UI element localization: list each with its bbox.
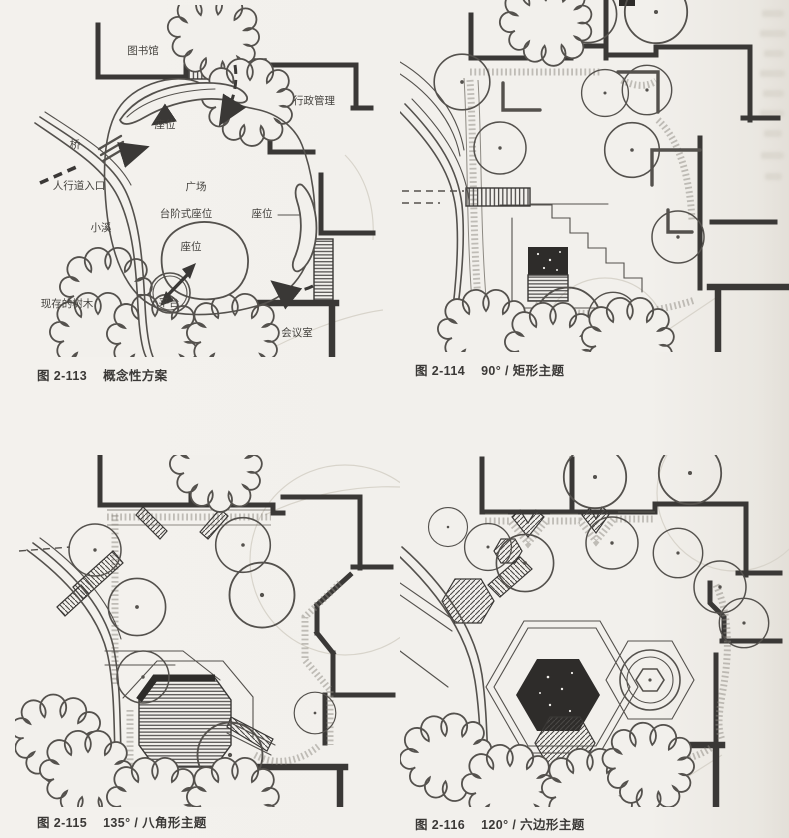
caption-fig-number: 图 2-114 [415, 364, 465, 378]
caption-title: 120° / 六边形主题 [481, 818, 585, 832]
label-seat-center: 座位 [181, 240, 202, 253]
stairs-right [314, 239, 333, 301]
label-library: 图书馆 [127, 44, 159, 57]
building-walls [471, 0, 789, 350]
caption-2-114: 图 2-11490° / 矩形主题 [415, 360, 564, 379]
octagon-deck [105, 651, 275, 767]
seat-band-right [293, 184, 317, 271]
label-admin: 行政管理 [293, 94, 335, 107]
label-platform: 平台 [159, 296, 180, 309]
bridge-hatch [19, 547, 123, 616]
planting-bands [485, 507, 727, 761]
label-seat-right: 座位 [252, 207, 273, 220]
figure-rect-theme: 图 2-11490° / 矩形主题 [400, 0, 789, 352]
bridge-hatch [442, 539, 532, 623]
caption-2-116: 图 2-116120° / 六边形主题 [415, 814, 585, 833]
caption-title: 135° / 八角形主题 [103, 816, 207, 830]
label-stream: 小溪 [91, 222, 112, 234]
caption-2-115: 图 2-115135° / 八角形主题 [37, 812, 207, 831]
figure-concept-scheme: 图书馆 行政管理 座位 桥 人行道入口 广场 台阶式座位 座位 小溪 座位 现存… [15, 5, 385, 357]
figure-hexagon-theme: 图 2-116120° / 六边形主题 [400, 455, 789, 807]
diagram-2-116 [400, 455, 789, 807]
caption-fig-number: 图 2-113 [37, 369, 87, 383]
book-page: 图书馆 行政管理 座位 桥 人行道入口 广场 台阶式座位 座位 小溪 座位 现存… [0, 0, 789, 838]
label-existing-trees: 现存的树木 [41, 297, 94, 310]
caption-2-113: 图 2-113概念性方案 [37, 365, 168, 384]
diagram-2-115 [15, 455, 400, 807]
bridge-hatch [402, 188, 608, 206]
diagram-2-114 [400, 0, 789, 352]
label-meeting: 会议室 [281, 326, 313, 339]
caption-fig-number: 图 2-116 [415, 818, 465, 832]
caption-fig-number: 图 2-115 [37, 816, 87, 830]
label-bridge: 桥 [70, 139, 81, 151]
figure-octagon-theme: 图 2-115135° / 八角形主题 [15, 455, 400, 807]
hexagon-fountain [606, 641, 694, 719]
label-stepped-seat: 台阶式座位 [160, 207, 213, 220]
label-plaza: 广场 [186, 180, 207, 193]
diagram-2-113: 图书馆 行政管理 座位 桥 人行道入口 广场 台阶式座位 座位 小溪 座位 现存… [15, 5, 385, 357]
caption-title: 概念性方案 [103, 369, 168, 383]
mid-right-walls [321, 175, 373, 233]
label-walk-entry: 人行道入口 [53, 179, 106, 192]
stepped-terrace [500, 205, 642, 308]
label-seat-top: 座位 [155, 118, 176, 131]
bridge-hatch [99, 136, 125, 161]
caption-title: 90° / 矩形主题 [481, 364, 564, 378]
